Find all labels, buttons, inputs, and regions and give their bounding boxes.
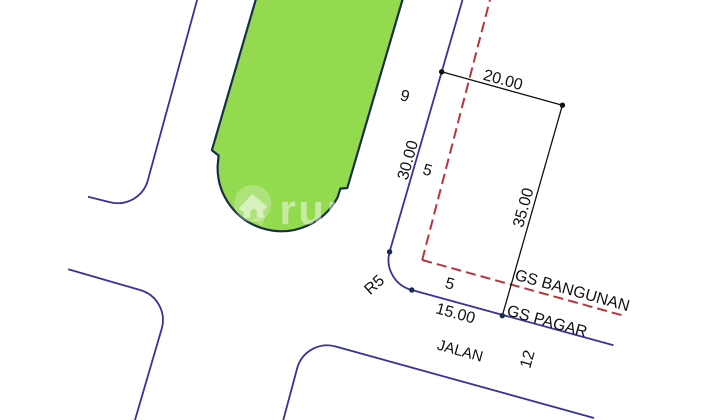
svg-text:rumah123: rumah123: [280, 186, 498, 233]
